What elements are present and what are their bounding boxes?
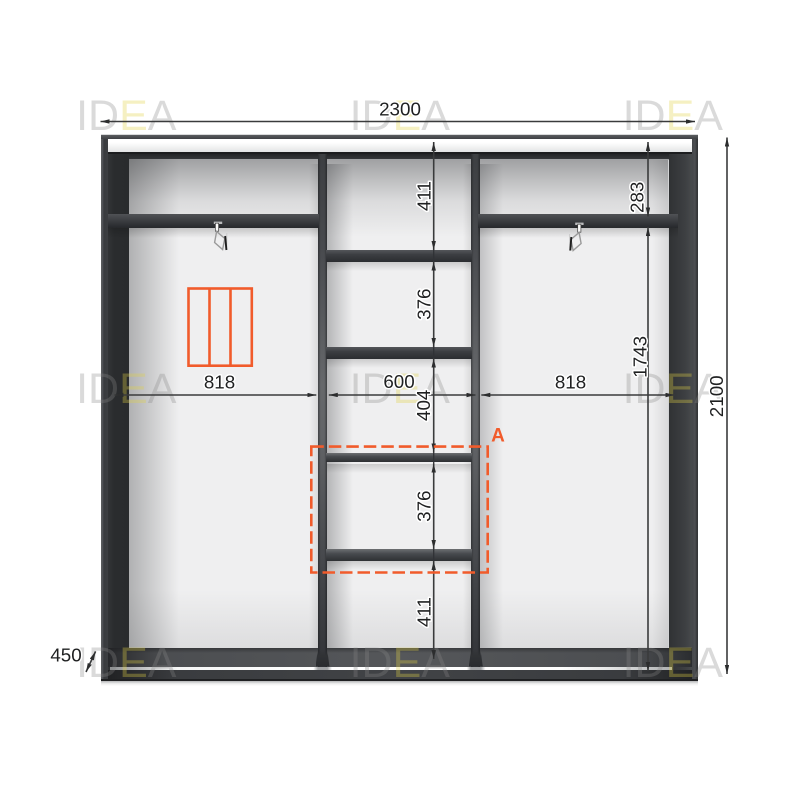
svg-text:411: 411 [414, 597, 435, 627]
svg-text:A: A [491, 426, 505, 447]
svg-text:1743: 1743 [630, 336, 651, 378]
svg-text:2100: 2100 [706, 375, 727, 417]
svg-text:818: 818 [555, 372, 586, 393]
svg-text:411: 411 [414, 181, 435, 211]
svg-text:376: 376 [414, 491, 435, 522]
svg-text:404: 404 [413, 390, 434, 421]
svg-text:600: 600 [383, 371, 414, 392]
svg-text:2300: 2300 [379, 99, 421, 120]
svg-text:818: 818 [204, 372, 235, 393]
svg-text:450: 450 [50, 644, 81, 665]
svg-text:376: 376 [414, 289, 435, 320]
svg-text:283: 283 [627, 182, 648, 213]
